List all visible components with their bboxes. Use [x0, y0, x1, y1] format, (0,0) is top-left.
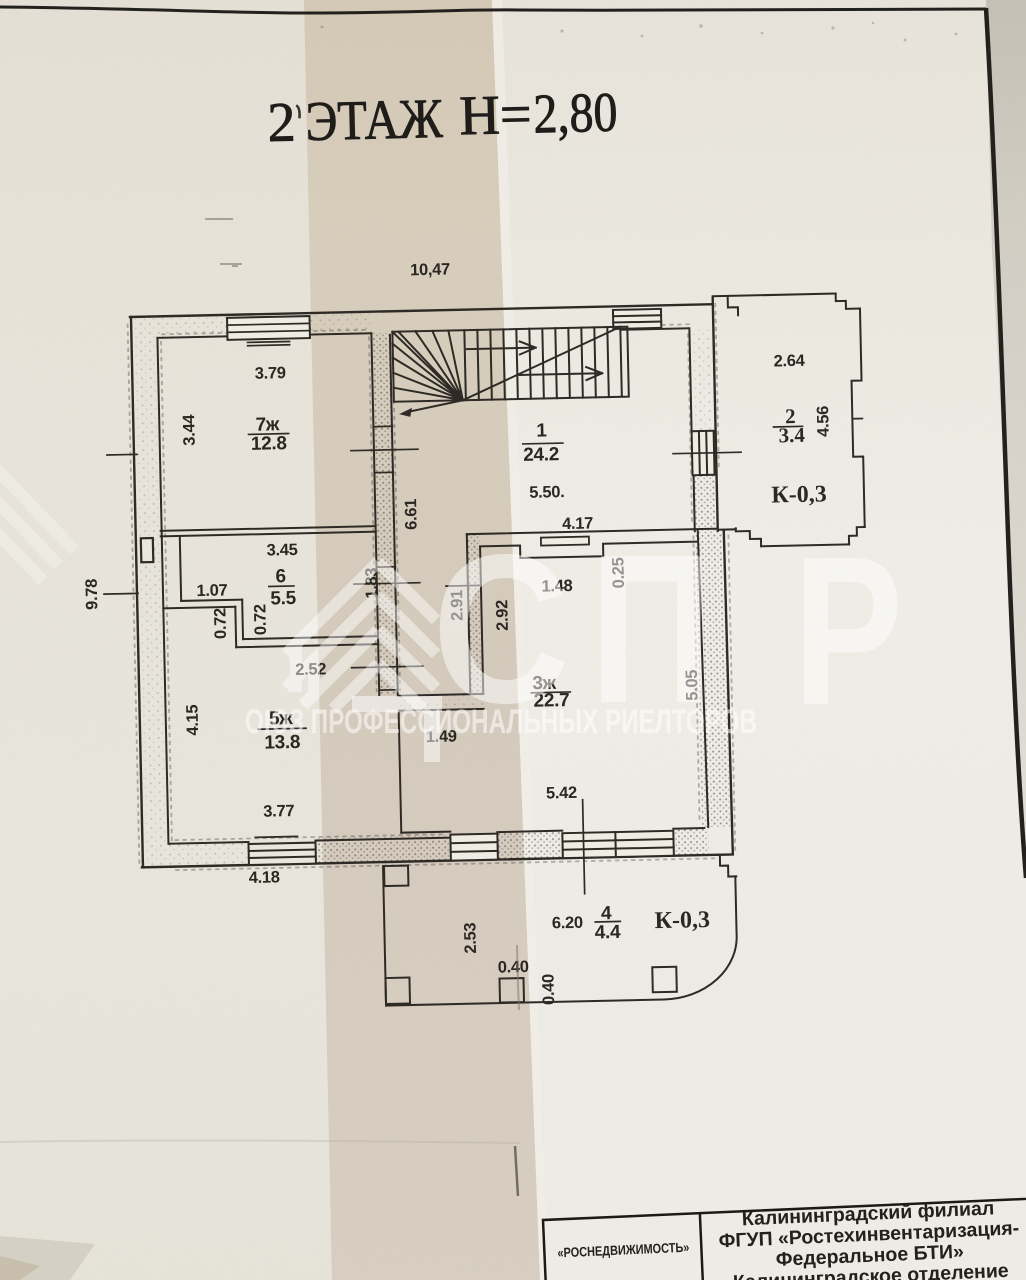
svg-text:12.8: 12.8	[251, 433, 287, 455]
svg-text:5.50.: 5.50.	[529, 483, 565, 502]
svg-text:4.15: 4.15	[183, 704, 202, 735]
svg-text:4.56: 4.56	[814, 406, 833, 437]
svg-text:1: 1	[536, 420, 547, 441]
svg-text:4.4: 4.4	[595, 922, 622, 944]
svg-text:0.40: 0.40	[539, 974, 558, 1005]
svg-text:3.45: 3.45	[266, 541, 297, 560]
svg-text:6: 6	[275, 566, 286, 587]
svg-text:Р: Р	[793, 512, 903, 749]
svg-text:2: 2	[267, 91, 297, 154]
svg-text:0.40: 0.40	[498, 958, 529, 977]
svg-text:3.44: 3.44	[180, 413, 199, 445]
svg-text:2.64: 2.64	[773, 352, 805, 371]
svg-text:К-0,3: К-0,3	[771, 481, 827, 508]
svg-text:0.72: 0.72	[251, 604, 270, 635]
svg-text:10,47: 10,47	[410, 260, 450, 279]
svg-text:5.42: 5.42	[546, 784, 577, 803]
svg-text:ЭТАЖ: ЭТАЖ	[305, 88, 444, 153]
svg-text:2.53: 2.53	[461, 922, 480, 953]
svg-text:5.5: 5.5	[270, 588, 297, 610]
svg-text:ОЮЗ ПРОФЕССИОНАЛЬНЫХ РИЕЛТОРОВ: ОЮЗ ПРОФЕССИОНАЛЬНЫХ РИЕЛТОРОВ	[245, 703, 757, 741]
svg-text:Н=: Н=	[459, 84, 533, 148]
svg-text:3.77: 3.77	[263, 802, 294, 821]
svg-text:24.2: 24.2	[523, 444, 559, 466]
svg-text:3.79: 3.79	[255, 364, 286, 383]
svg-text:6.20: 6.20	[552, 914, 583, 933]
svg-text:1.07: 1.07	[196, 581, 227, 600]
svg-text:2,80: 2,80	[533, 82, 618, 146]
svg-text:К-0,3: К-0,3	[654, 907, 710, 934]
svg-text:9.78: 9.78	[83, 579, 102, 610]
svg-text:6.61: 6.61	[402, 499, 421, 530]
svg-text:3.4: 3.4	[778, 423, 805, 448]
svg-text:4.18: 4.18	[249, 868, 280, 887]
svg-text:0.72: 0.72	[211, 608, 230, 639]
